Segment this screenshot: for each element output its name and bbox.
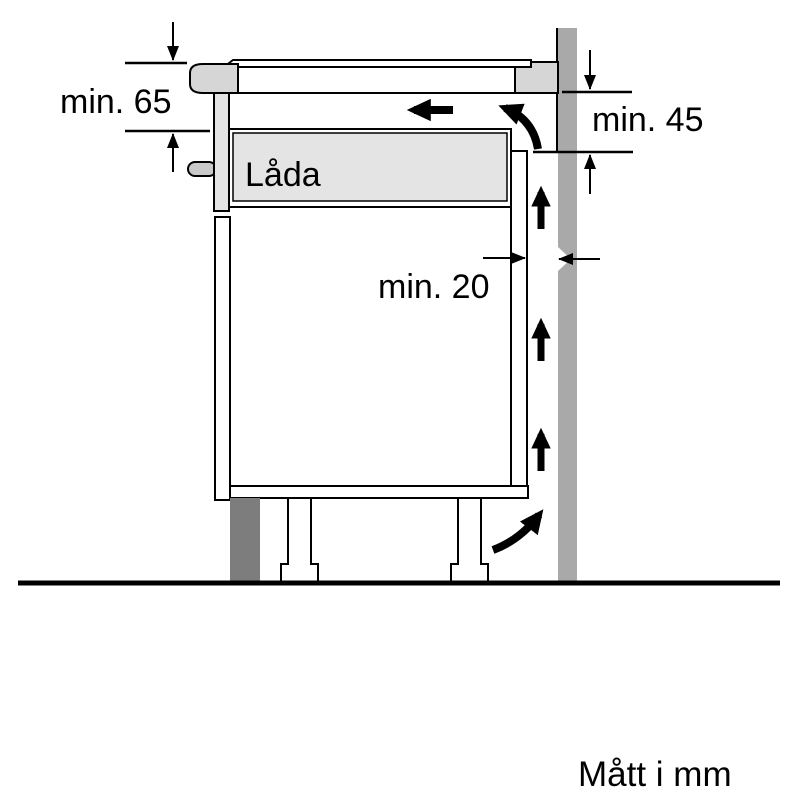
cabinet-side-panel [215, 217, 230, 500]
units-note: Mått i mm [578, 755, 732, 794]
drawer-label: Låda [245, 156, 321, 194]
dim20-label: min. 20 [378, 268, 490, 306]
hob-housing [237, 66, 515, 93]
cabinet-bottom-panel [230, 486, 528, 498]
diagram-svg: Låda min. 65 min. 45 min. 20 Mått i mm [0, 0, 800, 800]
cabinet-front-rail [214, 93, 229, 211]
cabinet-rear-panel [511, 151, 527, 487]
worktop-front-edge [190, 64, 238, 93]
cabinet-leg-rear [451, 498, 488, 583]
wall [558, 28, 577, 583]
airflow-curved-bottom-arrow-icon [493, 515, 539, 550]
installation-diagram: Låda min. 65 min. 45 min. 20 Mått i mm [0, 0, 800, 800]
cabinet-leg-front [281, 498, 318, 583]
plinth-panel [230, 498, 260, 583]
dim65-label: min. 65 [60, 83, 172, 121]
drawer-handle [188, 162, 216, 176]
dim45-label: min. 45 [592, 101, 704, 139]
hob-glass-surface [224, 60, 531, 67]
